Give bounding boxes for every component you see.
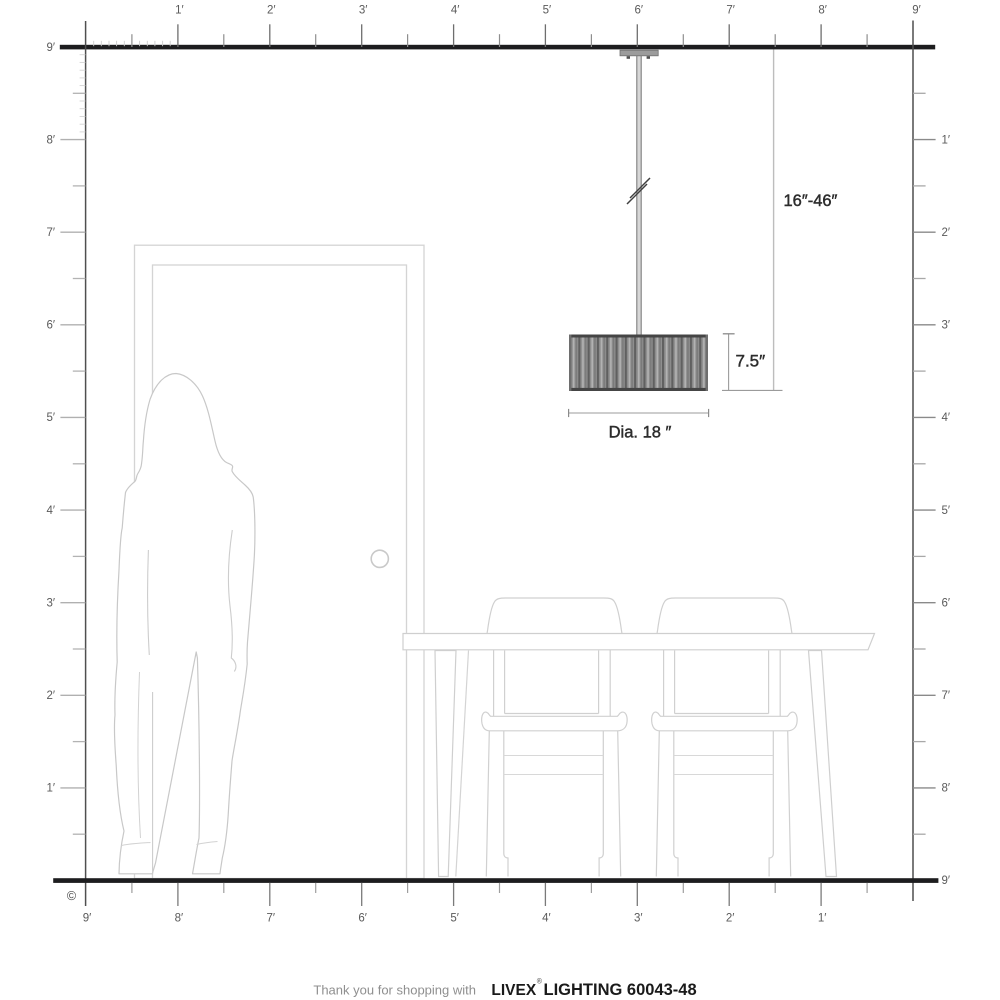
svg-text:5′: 5′ (543, 5, 552, 17)
svg-text:8′: 8′ (942, 783, 951, 795)
svg-text:2′: 2′ (726, 913, 735, 925)
svg-text:©: © (67, 889, 77, 903)
svg-text:Dia. 18 ″: Dia. 18 ″ (609, 424, 672, 442)
svg-text:3′: 3′ (46, 598, 55, 610)
svg-text:2′: 2′ (46, 690, 55, 702)
svg-text:6′: 6′ (46, 320, 55, 332)
svg-text:LIVEX: LIVEX (491, 982, 536, 999)
svg-text:8′: 8′ (175, 913, 184, 925)
svg-text:4′: 4′ (542, 913, 551, 925)
svg-text:4′: 4′ (451, 5, 460, 17)
svg-text:5′: 5′ (450, 913, 459, 925)
svg-text:3′: 3′ (634, 913, 643, 925)
svg-text:3′: 3′ (942, 320, 951, 332)
svg-text:9′: 9′ (942, 875, 951, 887)
svg-text:LIGHTING 60043-48: LIGHTING 60043-48 (544, 981, 697, 999)
svg-text:2′: 2′ (267, 5, 276, 17)
svg-text:6′: 6′ (358, 913, 367, 925)
svg-text:3′: 3′ (359, 5, 368, 17)
svg-text:7.5″: 7.5″ (736, 352, 766, 371)
svg-text:7′: 7′ (726, 5, 735, 17)
svg-text:5′: 5′ (942, 505, 951, 517)
svg-text:1′: 1′ (818, 913, 827, 925)
svg-text:8′: 8′ (46, 134, 55, 146)
svg-text:4′: 4′ (46, 505, 55, 517)
svg-text:5′: 5′ (46, 412, 55, 424)
svg-text:9′: 9′ (83, 913, 92, 925)
svg-text:4′: 4′ (942, 412, 951, 424)
svg-text:7′: 7′ (942, 690, 951, 702)
svg-text:16″-46″: 16″-46″ (784, 192, 838, 210)
svg-text:7′: 7′ (46, 227, 55, 239)
svg-text:9′: 9′ (46, 42, 55, 54)
svg-text:1′: 1′ (942, 134, 951, 146)
svg-text:7′: 7′ (267, 913, 276, 925)
svg-text:6′: 6′ (942, 598, 951, 610)
svg-text:9′: 9′ (912, 5, 921, 17)
svg-text:6′: 6′ (635, 5, 644, 17)
svg-text:®: ® (537, 978, 543, 986)
svg-text:1′: 1′ (46, 783, 55, 795)
svg-text:8′: 8′ (818, 5, 827, 17)
svg-text:1′: 1′ (175, 5, 184, 17)
svg-text:2′: 2′ (942, 227, 951, 239)
svg-text:Thank you for shopping with: Thank you for shopping with (313, 983, 476, 998)
